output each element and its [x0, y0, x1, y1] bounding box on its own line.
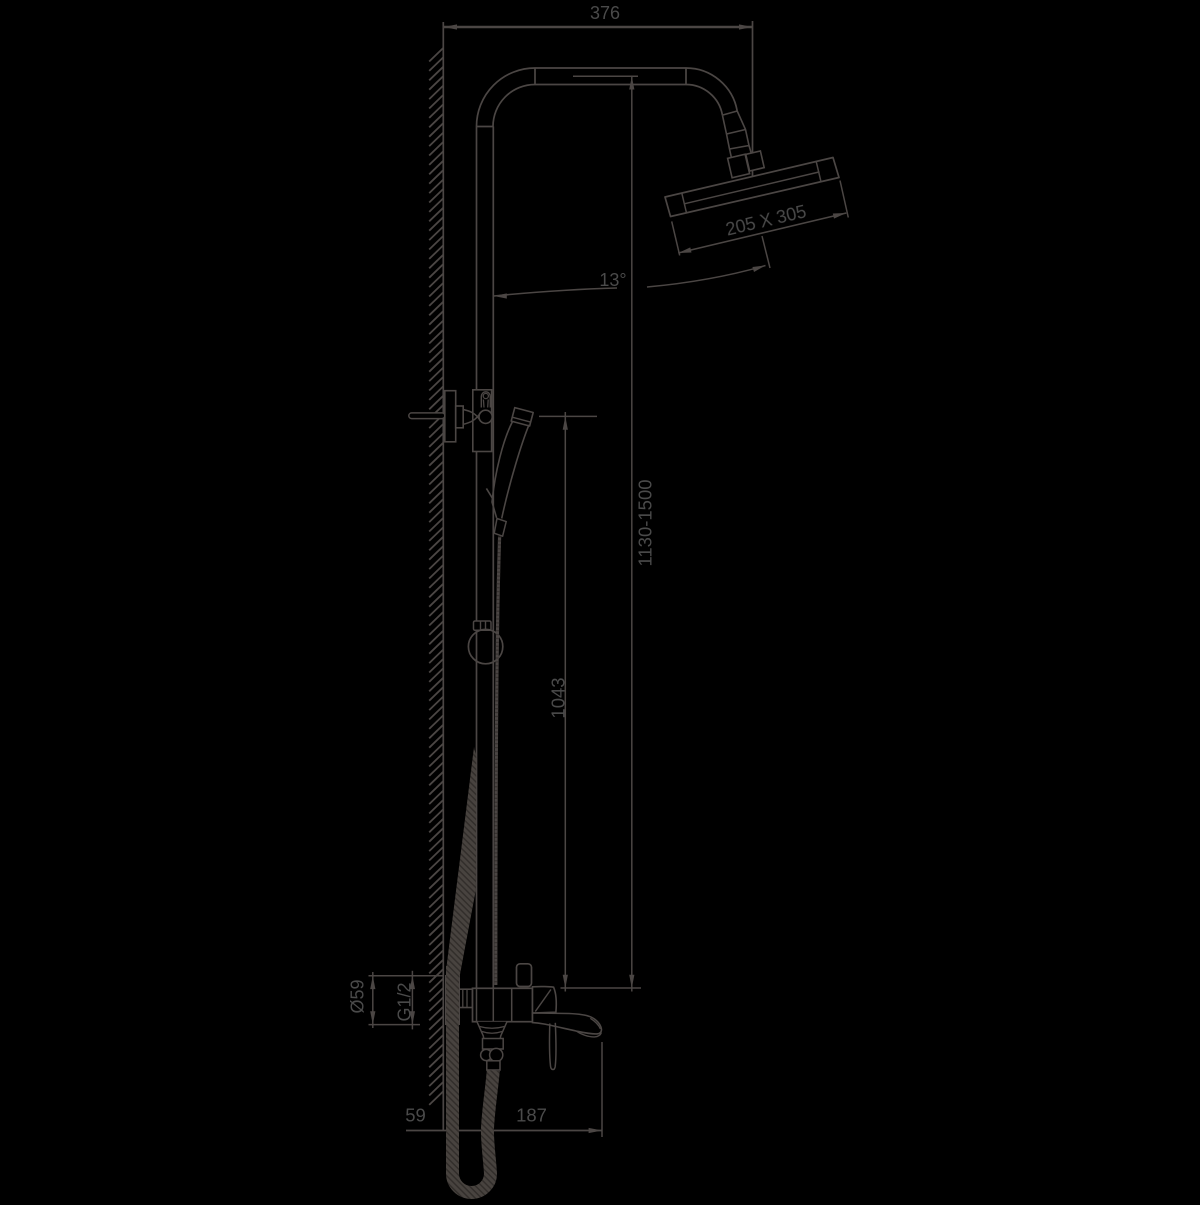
svg-text:59: 59 — [405, 1105, 426, 1126]
svg-text:G1/2: G1/2 — [395, 982, 415, 1021]
svg-text:Ø59: Ø59 — [348, 979, 368, 1013]
svg-text:376: 376 — [590, 3, 620, 23]
svg-text:1043: 1043 — [548, 677, 569, 718]
svg-text:187: 187 — [516, 1105, 547, 1126]
svg-text:1130-1500: 1130-1500 — [635, 479, 656, 566]
svg-text:13°: 13° — [599, 270, 626, 290]
